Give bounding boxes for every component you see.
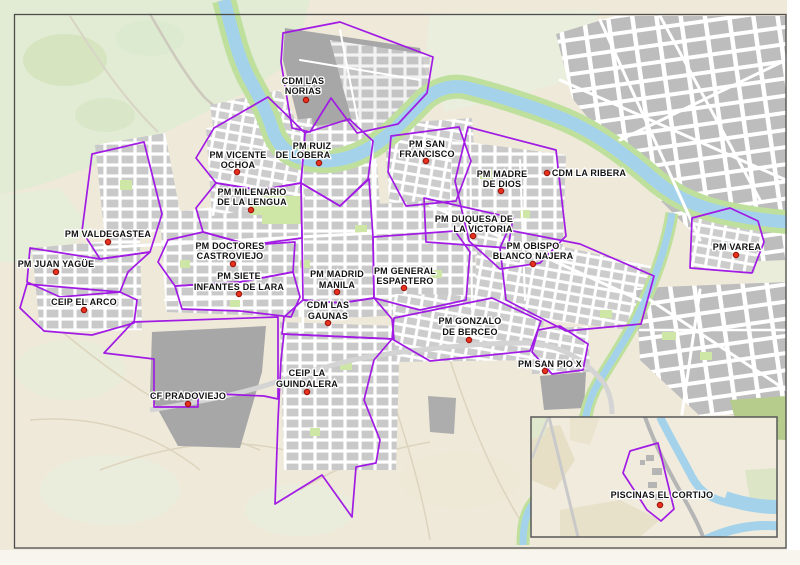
marker-label: PM DOCTORESCASTROVIEJO bbox=[195, 241, 264, 261]
woodland bbox=[116, 20, 184, 56]
marker-label: PM GONZALODE BERCEO bbox=[439, 316, 502, 337]
marker-dot bbox=[325, 320, 330, 325]
marker-cdm-la-ribera: CDM LA RIBERA bbox=[544, 168, 626, 178]
fields-s bbox=[400, 452, 520, 508]
marker-label: PM MILENARIODE LA LENGUA bbox=[217, 187, 287, 207]
marker-label: PM JUAN YAGÜE bbox=[18, 259, 95, 269]
marker-label: CDM LASGAUNAS bbox=[307, 300, 349, 321]
marker-dot bbox=[334, 289, 339, 294]
marker-dot bbox=[53, 269, 58, 274]
marker-label: PISCINAS EL CORTIJO bbox=[611, 490, 714, 500]
park bbox=[180, 260, 190, 268]
park bbox=[120, 180, 132, 190]
marker-dot bbox=[733, 252, 738, 257]
marker-dot bbox=[530, 261, 535, 266]
industrial-san-pio bbox=[540, 372, 586, 410]
marker-label: CDM LA RIBERA bbox=[552, 168, 627, 178]
marker-label: PM VALDEGASTEA bbox=[65, 229, 151, 239]
marker-dot bbox=[470, 233, 475, 238]
marker-dot bbox=[185, 401, 190, 406]
marker-label: PM GENERALESPARTERO bbox=[374, 266, 436, 286]
marker-dot bbox=[423, 158, 428, 163]
marker-dot bbox=[230, 261, 235, 266]
fields-sw bbox=[40, 455, 180, 525]
park bbox=[600, 310, 612, 318]
marker-dot bbox=[105, 239, 110, 244]
marker-dot bbox=[248, 207, 253, 212]
marker-dot bbox=[544, 170, 549, 175]
map-margin-right bbox=[787, 0, 800, 565]
marker-dot bbox=[303, 97, 308, 102]
marker-dot bbox=[304, 389, 309, 394]
woodland bbox=[75, 98, 135, 132]
marker-dot bbox=[316, 160, 321, 165]
marker-label: CDM LASNORIAS bbox=[282, 76, 324, 96]
marker-dot bbox=[81, 307, 86, 312]
gray-blob-south bbox=[428, 396, 456, 434]
marker-dot bbox=[466, 337, 471, 342]
woodland bbox=[23, 34, 107, 86]
marker-dot bbox=[542, 368, 547, 373]
park bbox=[230, 300, 240, 307]
park bbox=[700, 352, 712, 360]
marker-dot bbox=[234, 169, 239, 174]
marker-dot bbox=[401, 285, 406, 290]
map-page: CDM LASNORIAS PM VICENTEOCHOA PM RUIZDE … bbox=[0, 0, 800, 565]
district-guindalera bbox=[280, 322, 400, 470]
fields-s bbox=[245, 484, 355, 536]
marker-label: PM MADREDE DIOS bbox=[477, 169, 528, 189]
marker-dot bbox=[657, 502, 662, 507]
map-canvas: CDM LASNORIAS PM VICENTEOCHOA PM RUIZDE … bbox=[0, 0, 800, 565]
marker-label: CF PRADOVIEJO bbox=[150, 391, 226, 401]
map-margin-bottom bbox=[0, 550, 800, 565]
marker-label: PM VAREA bbox=[713, 242, 762, 252]
marker-dot bbox=[498, 188, 503, 193]
park bbox=[662, 332, 676, 340]
inset-map bbox=[531, 417, 778, 540]
marker-dot bbox=[236, 291, 241, 296]
marker-label: PM SAN PIO X bbox=[518, 359, 582, 369]
marker-label: CEIP EL ARCO bbox=[51, 297, 117, 307]
park bbox=[310, 428, 320, 436]
